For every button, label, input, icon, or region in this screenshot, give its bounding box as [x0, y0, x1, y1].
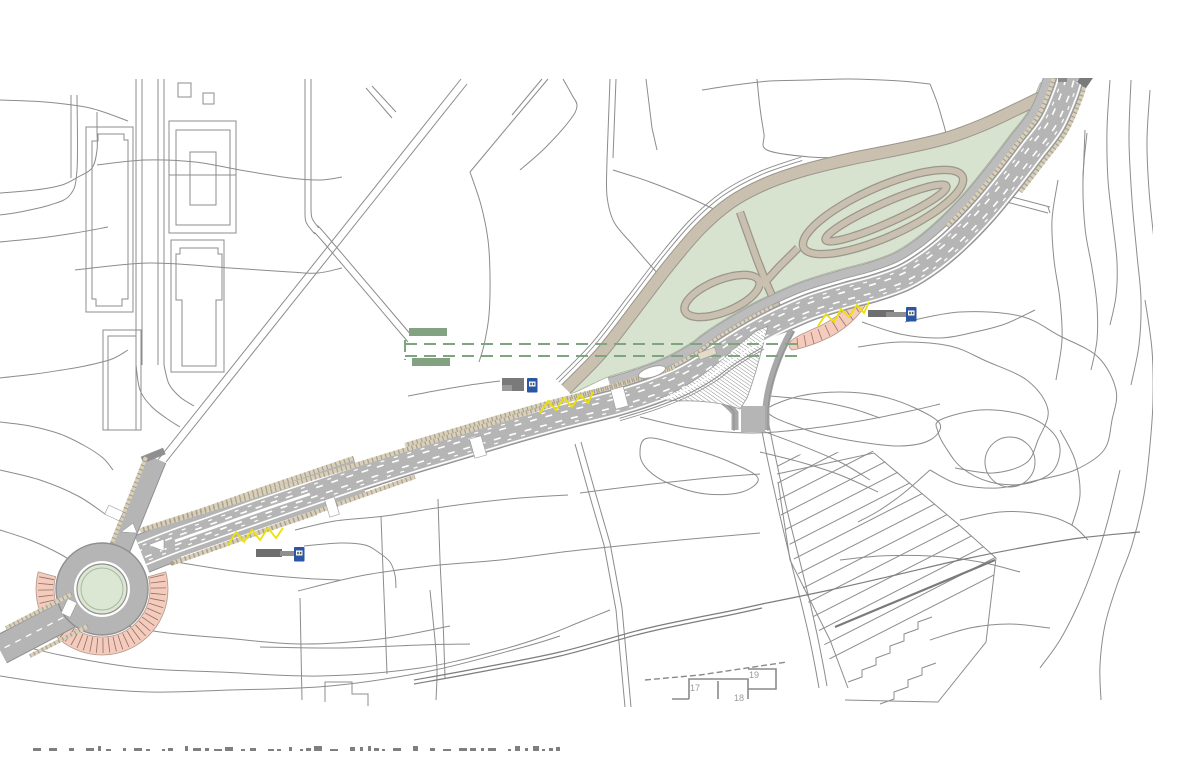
svg-text:18: 18 — [734, 693, 744, 703]
svg-text:19: 19 — [749, 670, 759, 680]
svg-text:17: 17 — [690, 683, 700, 693]
